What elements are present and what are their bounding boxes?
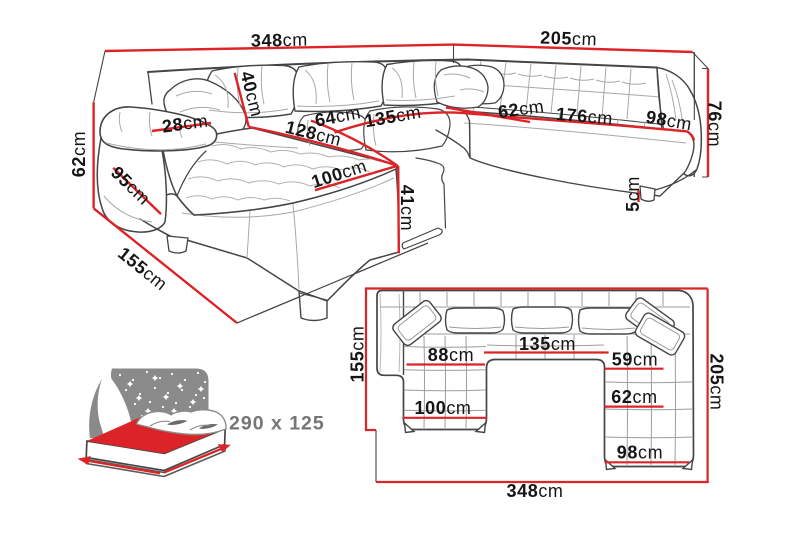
svg-text:135cm: 135cm: [519, 334, 576, 354]
svg-text:59cm: 59cm: [612, 350, 658, 370]
svg-text:348cm: 348cm: [251, 30, 308, 51]
svg-text:290 x 125: 290 x 125: [229, 413, 325, 435]
svg-text:76cm: 76cm: [705, 101, 725, 147]
svg-text:348cm: 348cm: [506, 481, 563, 501]
svg-text:205cm: 205cm: [540, 28, 598, 50]
svg-text:62cm: 62cm: [611, 387, 657, 407]
svg-text:100cm: 100cm: [414, 398, 471, 418]
svg-text:155cm: 155cm: [348, 325, 368, 382]
svg-text:5cm: 5cm: [623, 176, 643, 212]
svg-text:41cm: 41cm: [397, 185, 417, 231]
svg-text:88cm: 88cm: [428, 345, 474, 365]
svg-text:205cm: 205cm: [707, 353, 727, 410]
svg-text:62cm: 62cm: [69, 131, 89, 177]
svg-text:98cm: 98cm: [617, 443, 663, 463]
